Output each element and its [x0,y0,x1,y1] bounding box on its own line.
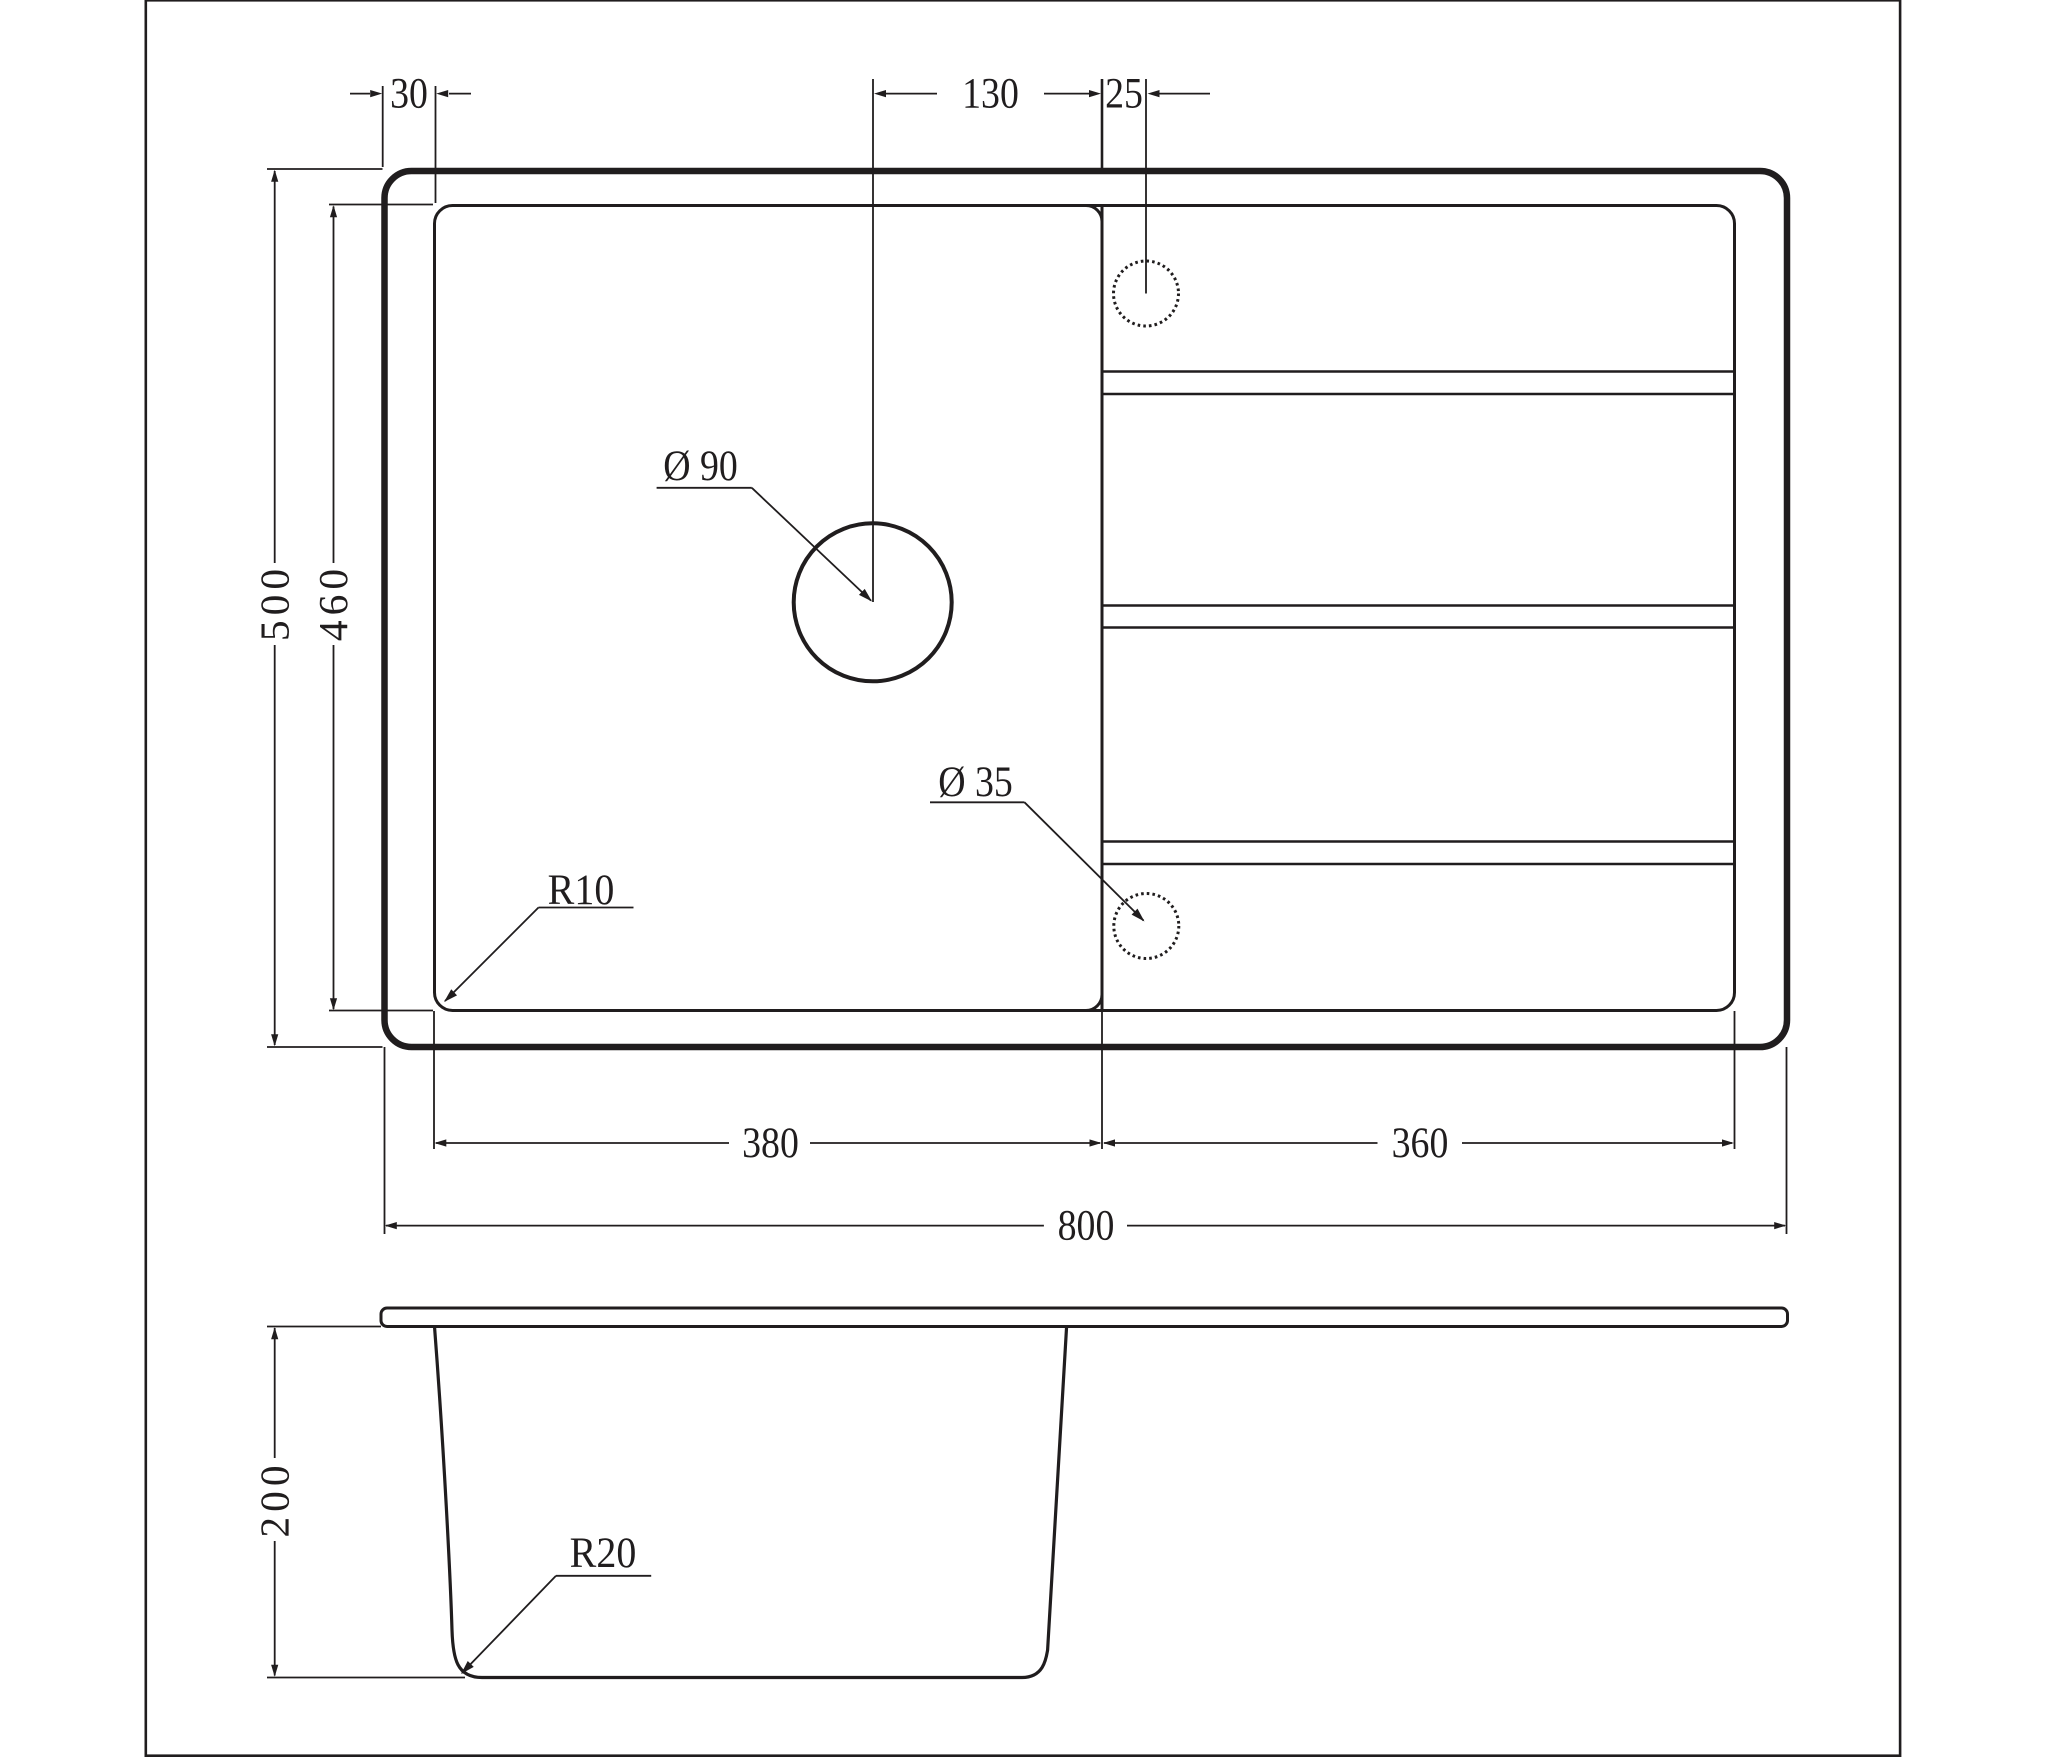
svg-text:130: 130 [962,69,1019,117]
svg-text:25: 25 [1105,69,1143,117]
svg-text:R10: R10 [548,866,615,914]
svg-text:460: 460 [310,564,356,641]
svg-text:360: 360 [1392,1119,1449,1167]
svg-text:Ø 90: Ø 90 [663,442,738,490]
svg-text:Ø 35: Ø 35 [938,758,1013,806]
svg-text:380: 380 [742,1119,799,1167]
svg-text:800: 800 [1058,1201,1115,1249]
svg-text:500: 500 [251,564,297,641]
svg-text:30: 30 [390,69,428,117]
svg-text:200: 200 [251,1460,297,1537]
svg-text:R20: R20 [570,1529,637,1577]
